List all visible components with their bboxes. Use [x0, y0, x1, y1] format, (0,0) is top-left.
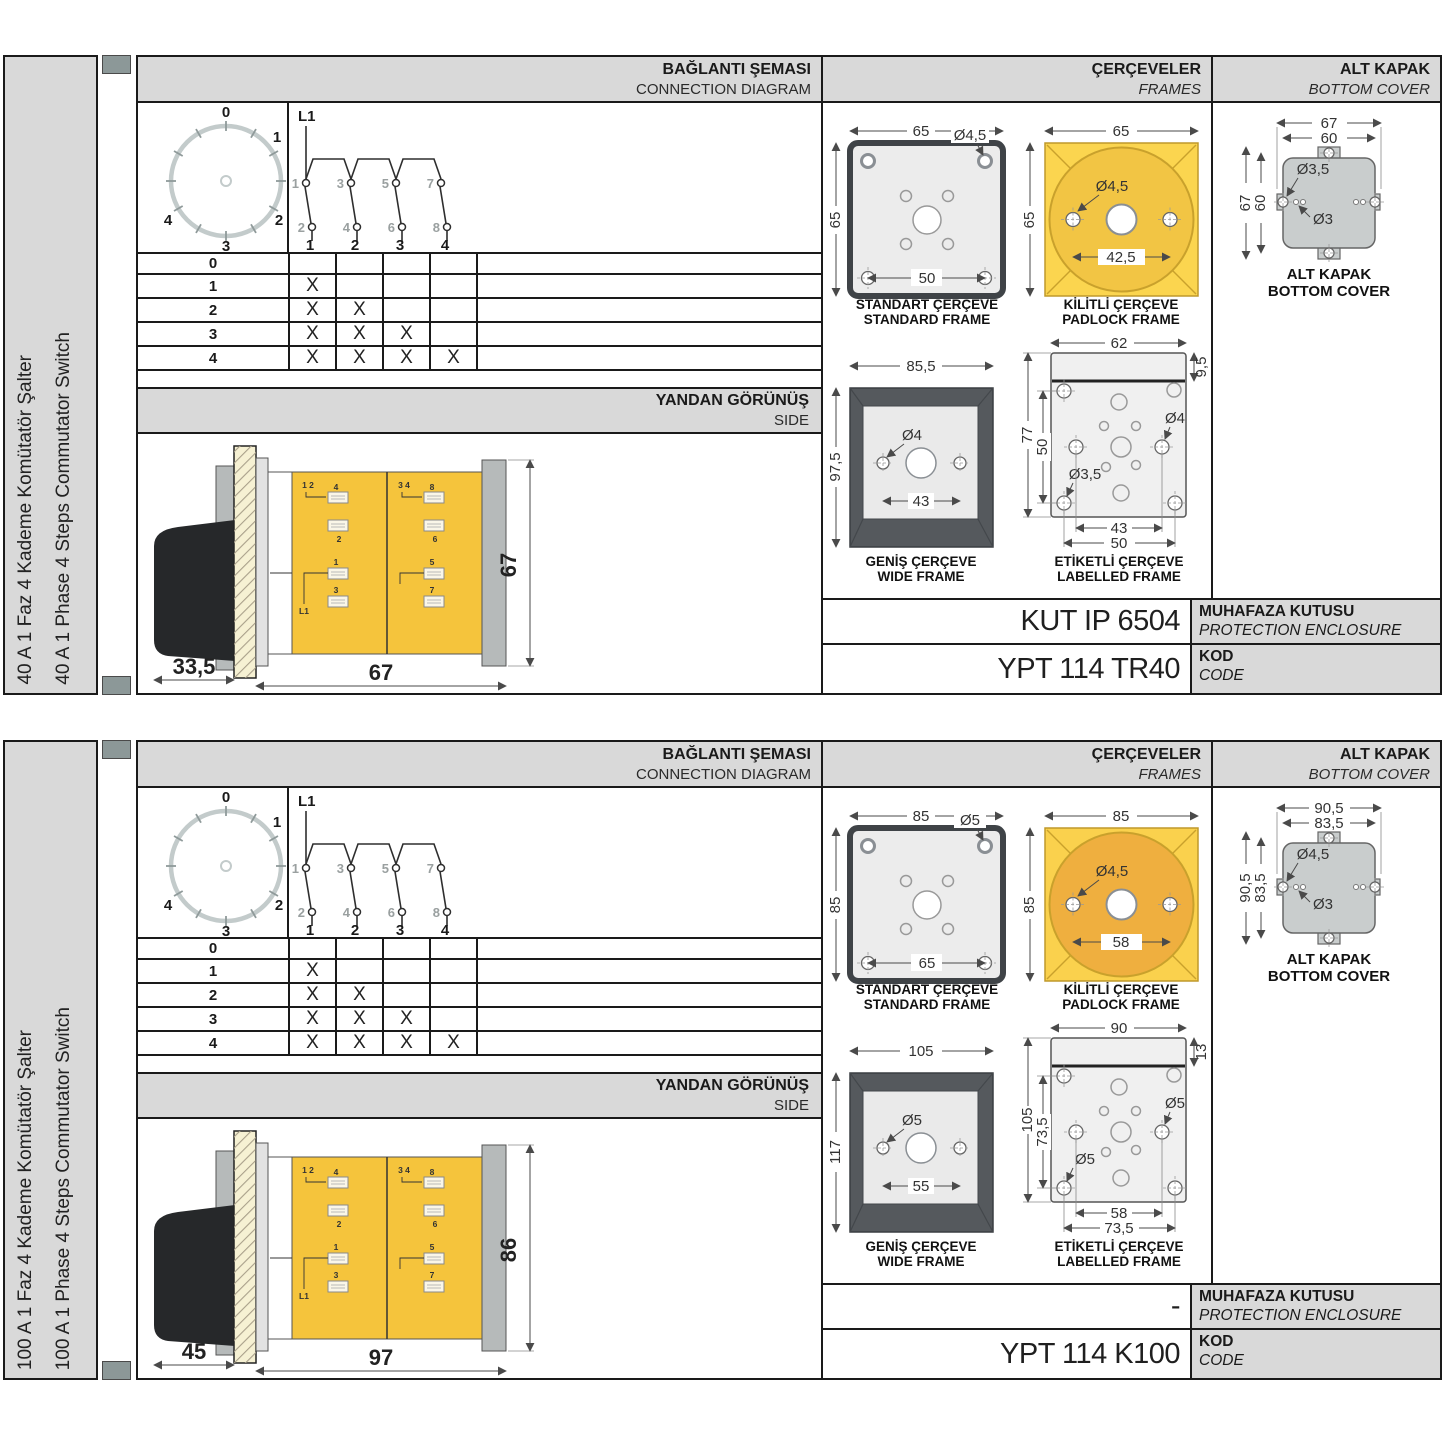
bottom-cover-drawing: 90,5 83,5 90,5 83,5 Ø4,5 Ø3 ALT KAPAK [1213, 788, 1440, 1283]
table-row: 3 X X X [138, 1007, 821, 1031]
strip-block-bottom [102, 676, 131, 695]
mark-cell [336, 938, 383, 959]
dim-hole: Ø5 [960, 812, 980, 829]
side-view-header: YANDAN GÖRÜNÜŞ SIDE [138, 387, 821, 434]
contact-label: 8 [433, 905, 440, 920]
header-title-en: FRAMES [823, 80, 1201, 99]
code-value: YPT 114 TR40 [823, 645, 1190, 693]
dial-position-1: 1 [273, 129, 281, 146]
wide-frame-drawing: Ø5 55 105 117 GENİŞ ÇERÇEVE WIDE FRAME [827, 1043, 993, 1269]
band-title-tr: YANDAN GÖRÜNÜŞ [138, 391, 809, 411]
band-title-en: SIDE [138, 1096, 809, 1115]
dim-inner-h: 83,5 [1252, 873, 1269, 902]
dim-spacing2: 73,5 [1104, 1220, 1133, 1237]
product-section-40a: 40 A 1 Faz 4 Kademe Komütatör Şalter 40 … [3, 55, 1442, 695]
enclosure-value: KUT IP 6504 [823, 600, 1190, 643]
contact-label: 2 [298, 220, 305, 235]
dim-height: 85 [827, 897, 844, 914]
enclosure-row: KUT IP 6504 MUHAFAZA KUTUSU PROTECTION E… [823, 600, 1440, 645]
step-cell: 1 [138, 959, 289, 983]
mark-cell: X [289, 346, 336, 370]
dial-position-4: 4 [164, 897, 173, 914]
catalog-page: 40 A 1 Faz 4 Kademe Komütatör Şalter 40 … [0, 0, 1445, 1445]
spacer [268, 1157, 292, 1339]
label-tr: KOD [1199, 1332, 1440, 1351]
dim-inner-h: 60 [1252, 195, 1269, 212]
dim-spacing: 43 [913, 493, 930, 510]
header-title-en: CONNECTION DIAGRAM [138, 80, 811, 99]
caption-tr: ETİKETLİ ÇERÇEVE [1054, 554, 1183, 569]
side-view-header: YANDAN GÖRÜNÜŞ SIDE [138, 1072, 821, 1119]
band-title-en: SIDE [138, 411, 809, 430]
contact-label: 6 [388, 905, 395, 920]
mark-cell: X [289, 274, 336, 298]
caption-tr: STANDART ÇERÇEVE [856, 982, 998, 997]
dial-position-2: 2 [275, 212, 283, 229]
sticker-label: 1 [334, 1242, 339, 1252]
mark-cell [430, 274, 477, 298]
switch-body: 1 2 3 4 4 2 1 3 8 6 5 7 L1 [270, 1157, 482, 1339]
binding-strip [98, 55, 136, 695]
header-title-en: BOTTOM COVER [1213, 80, 1430, 99]
step-cell: 2 [138, 983, 289, 1007]
step-contact-table: 0 1 X 2 X X [138, 937, 821, 1056]
mark-cell: X [383, 346, 430, 370]
caption-en: WIDE FRAME [878, 1254, 965, 1269]
empty-cell [477, 298, 821, 322]
empty-cell [477, 274, 821, 298]
mark-cell [430, 1007, 477, 1031]
step-cell: 4 [138, 346, 289, 370]
header-title-tr: ÇERÇEVELER [823, 60, 1201, 80]
dial-position-3: 3 [222, 923, 230, 937]
label-en: PROTECTION ENCLOSURE [1199, 621, 1440, 640]
mark-cell [383, 298, 430, 322]
strip-block-top [102, 740, 131, 759]
step-cell: 2 [138, 298, 289, 322]
mark-cell: X [336, 322, 383, 346]
mark-cell [289, 253, 336, 274]
dim-width: 65 [1113, 123, 1130, 140]
sticker-label: 6 [433, 1219, 438, 1229]
header-title-en: CONNECTION DIAGRAM [138, 765, 811, 784]
sticker-label: 3 [334, 1270, 339, 1280]
switch-body: 1 2 3 4 4 2 1 3 8 6 5 7 L1 [270, 472, 482, 654]
mark-cell [430, 253, 477, 274]
dim-depth: 45 [182, 1339, 206, 1364]
frames-header: ÇERÇEVELER FRAMES [823, 57, 1211, 103]
code-label: KOD CODE [1190, 1330, 1440, 1378]
dim-width: 67 [369, 660, 393, 685]
contact-label: 3 [337, 861, 344, 876]
mark-cell: X [336, 1007, 383, 1031]
dim-height: 65 [1021, 212, 1038, 229]
standard-frame-drawing: 65 Ø4,5 65 50 STANDART ÇERÇEVE STANDARD … [827, 123, 1003, 327]
product-title-tr: 100 A 1 Faz 4 Kademe Komütatör Şalter [15, 1030, 37, 1370]
sticker-label: 5 [430, 1242, 435, 1252]
section-title-sidebar: 100 A 1 Faz 4 Kademe Komütatör Şalter 10… [3, 740, 98, 1380]
spec-rows: - MUHAFAZA KUTUSU PROTECTION ENCLOSURE Y… [823, 1283, 1440, 1378]
dim-spacing2: 50 [1111, 535, 1128, 552]
dial-position-3: 3 [222, 238, 230, 252]
sticker-label: 5 [430, 557, 435, 567]
label-en: PROTECTION ENCLOSURE [1199, 1306, 1440, 1325]
sticker-label: 7 [430, 585, 435, 595]
dim-strip: 13 [1193, 1044, 1210, 1061]
product-title-en: 100 A 1 Phase 4 Steps Commutator Switch [53, 1007, 75, 1370]
table-row: 1 X [138, 959, 821, 983]
dim-height: 117 [827, 1140, 844, 1164]
caption-tr: GENİŞ ÇERÇEVE [865, 1239, 976, 1254]
step-cell: 1 [138, 274, 289, 298]
dial-position-4: 4 [164, 212, 173, 229]
mark-cell: X [289, 1031, 336, 1055]
dim-hole2: Ø5 [1075, 1151, 1095, 1168]
front-plate [256, 458, 268, 666]
dim-spacing: 50 [919, 270, 936, 287]
caption-en: PADLOCK FRAME [1062, 997, 1180, 1012]
dim-inner-w: 60 [1321, 130, 1338, 147]
mark-cell [336, 253, 383, 274]
standard-frame-drawing: 85 Ø5 85 65 STANDART ÇERÇEVE STANDARD FR… [827, 808, 1003, 1012]
padlock-frame-drawing: Ø4,5 42,5 65 65 KİLİTLİ ÇERÇEVE PADLOCK … [1021, 123, 1198, 327]
mark-cell: X [336, 346, 383, 370]
spec-rows: KUT IP 6504 MUHAFAZA KUTUSU PROTECTION E… [823, 598, 1440, 693]
terminal-label: 3 [396, 922, 404, 937]
sticker-label: 8 [430, 482, 435, 492]
line-label: L1 [298, 793, 316, 810]
terminal-label: 2 [351, 922, 359, 937]
connection-diagram-header: BAĞLANTI ŞEMASI CONNECTION DIAGRAM [138, 57, 821, 103]
gasket-hatched-plate [234, 446, 256, 678]
dim-hole: Ø4 [1165, 410, 1185, 427]
body-terminal-header: 1 2 [302, 1165, 314, 1175]
table-row: 2 X X [138, 983, 821, 1007]
table-row: 1 X [138, 274, 821, 298]
mark-cell [383, 959, 430, 983]
side-view-drawing: 1 2 3 4 4 2 1 3 8 6 5 7 L1 33,5 [138, 434, 821, 693]
mark-cell [289, 938, 336, 959]
label-tr: KOD [1199, 647, 1440, 666]
enclosure-value: - [823, 1285, 1190, 1328]
mark-cell: X [289, 959, 336, 983]
contact-label: 2 [298, 905, 305, 920]
dim-inner-w: 83,5 [1314, 815, 1343, 832]
strip-block-top [102, 55, 131, 74]
empty-cell [477, 346, 821, 370]
sticker-label: 3 [334, 585, 339, 595]
switch-schematic: L1 1 3 5 7 2 [292, 793, 451, 937]
caption-en: PADLOCK FRAME [1062, 312, 1180, 327]
strip-block-bottom [102, 1361, 131, 1380]
sticker-label: 6 [433, 534, 438, 544]
contact-label: 3 [337, 176, 344, 191]
contact-label: 5 [382, 176, 389, 191]
contact-label: 1 [292, 176, 299, 191]
terminal-label: 2 [351, 237, 359, 252]
terminal-label: 1 [306, 237, 314, 252]
mark-cell: X [289, 1007, 336, 1031]
dim-hole: Ø4,5 [1297, 846, 1330, 863]
empty-cell [477, 983, 821, 1007]
mark-cell: X [383, 322, 430, 346]
dim-width: 85,5 [906, 358, 935, 375]
caption-en: STANDARD FRAME [864, 997, 991, 1012]
mark-cell: X [430, 1031, 477, 1055]
empty-cell [477, 959, 821, 983]
code-row: YPT 114 TR40 KOD CODE [823, 645, 1440, 693]
dim-spacing: 55 [913, 1178, 930, 1195]
mark-cell [336, 959, 383, 983]
dim-hole: Ø4,5 [954, 127, 987, 144]
terminal-label: 4 [441, 922, 450, 937]
frames-header: ÇERÇEVELER FRAMES [823, 742, 1211, 788]
sticker-label: 2 [337, 534, 342, 544]
header-title-tr: ALT KAPAK [1213, 60, 1430, 80]
dim-depth: 33,5 [173, 654, 216, 679]
step-cell: 3 [138, 322, 289, 346]
spacer [268, 472, 292, 654]
dim-height: 86 [496, 1238, 521, 1262]
label-tr: MUHAFAZA KUTUSU [1199, 602, 1440, 621]
mark-cell: X [289, 983, 336, 1007]
label-en: CODE [1199, 666, 1440, 685]
frames-drawings: 85 Ø5 85 65 STANDART ÇERÇEVE STANDARD FR… [823, 788, 1211, 1283]
empty-cell [477, 1031, 821, 1055]
step-cell: 0 [138, 253, 289, 274]
table-row: 2 X X [138, 298, 821, 322]
dim-hole2: Ø3 [1313, 896, 1333, 913]
code-row: YPT 114 K100 KOD CODE [823, 1330, 1440, 1378]
product-title-tr: 40 A 1 Faz 4 Kademe Komütatör Şalter [15, 355, 37, 685]
caption-tr: STANDART ÇERÇEVE [856, 297, 998, 312]
caption-en: STANDARD FRAME [864, 312, 991, 327]
dial-position-2: 2 [275, 897, 283, 914]
body-terminal-header: 3 4 [398, 1165, 410, 1175]
caption-en: WIDE FRAME [878, 569, 965, 584]
step-contact-table: 0 1 X 2 X X [138, 252, 821, 371]
contact-label: 5 [382, 861, 389, 876]
rotary-dial: 0 1 2 3 4 [164, 104, 286, 252]
dim-width: 85 [913, 808, 930, 825]
mark-cell: X [289, 298, 336, 322]
sticker-label: 7 [430, 1270, 435, 1280]
dim-height-inner: 73,5 [1034, 1117, 1051, 1146]
contact-label: 7 [427, 861, 434, 876]
header-title-en: BOTTOM COVER [1213, 765, 1430, 784]
bottom-cover-header: ALT KAPAK BOTTOM COVER [1213, 57, 1440, 103]
dim-width: 97 [369, 1345, 393, 1370]
dial-position-1: 1 [273, 814, 281, 831]
caption-tr: KİLİTLİ ÇERÇEVE [1064, 297, 1179, 312]
connection-diagram: 0 1 2 3 4 L1 [138, 103, 821, 252]
sticker-label: 4 [334, 1167, 339, 1177]
mark-cell [336, 274, 383, 298]
dial-position-0: 0 [222, 789, 230, 806]
wide-frame-drawing: Ø4 43 85,5 97,5 GENİŞ ÇERÇEVE WIDE FRAME [827, 358, 993, 584]
caption-tr: ETİKETLİ ÇERÇEVE [1054, 1239, 1183, 1254]
line-label: L1 [299, 606, 309, 616]
dim-hole2: Ø3,5 [1069, 466, 1102, 483]
dim-width: 62 [1111, 335, 1128, 352]
mark-cell [430, 983, 477, 1007]
body-terminal-header: 1 2 [302, 480, 314, 490]
terminal-label: 4 [441, 237, 450, 252]
label-tr: MUHAFAZA KUTUSU [1199, 1287, 1440, 1306]
gasket-hatched-plate [234, 1131, 256, 1363]
binding-strip [98, 740, 136, 1380]
mark-cell: X [383, 1031, 430, 1055]
contact-label: 7 [427, 176, 434, 191]
header-title-tr: ALT KAPAK [1213, 745, 1430, 765]
line-label: L1 [299, 1291, 309, 1301]
dim-height: 65 [827, 212, 844, 229]
mark-cell [430, 938, 477, 959]
contact-label: 4 [343, 905, 351, 920]
dim-hole: Ø3,5 [1297, 161, 1330, 178]
dim-hole: Ø4,5 [1096, 863, 1129, 880]
dim-hole: Ø4 [902, 427, 922, 444]
empty-cell [477, 1007, 821, 1031]
labelled-frame-drawing: 90 13 105 73,5 [1019, 1020, 1210, 1269]
step-cell: 0 [138, 938, 289, 959]
frames-drawings: 65 Ø4,5 65 50 STANDART ÇERÇEVE STANDARD … [823, 103, 1211, 598]
code-value: YPT 114 K100 [823, 1330, 1190, 1378]
label-en: CODE [1199, 1351, 1440, 1370]
mark-cell [430, 298, 477, 322]
mark-cell [383, 253, 430, 274]
mark-cell: X [383, 1007, 430, 1031]
caption-tr: GENİŞ ÇERÇEVE [865, 554, 976, 569]
padlock-frame-drawing: Ø4,5 58 85 85 KİLİTLİ ÇERÇEVE PADLOCK FR… [1021, 808, 1198, 1012]
mark-cell [383, 938, 430, 959]
line-label: L1 [298, 108, 316, 125]
dim-spacing: 65 [919, 955, 936, 972]
terminal-label: 3 [396, 237, 404, 252]
code-label: KOD CODE [1190, 645, 1440, 693]
caption-tr: ALT KAPAK [1287, 951, 1372, 968]
header-title-tr: BAĞLANTI ŞEMASI [138, 60, 811, 80]
product-section-100a: 100 A 1 Faz 4 Kademe Komütatör Şalter 10… [3, 740, 1442, 1380]
caption-en: LABELLED FRAME [1057, 1254, 1181, 1269]
mark-cell [430, 322, 477, 346]
step-cell: 4 [138, 1031, 289, 1055]
sticker-label: 2 [337, 1219, 342, 1229]
contact-label: 4 [343, 220, 351, 235]
table-row: 4 X X X X [138, 346, 821, 370]
bottom-cover-header: ALT KAPAK BOTTOM COVER [1213, 742, 1440, 788]
mark-cell: X [336, 298, 383, 322]
dim-width: 85 [1113, 808, 1130, 825]
dim-strip: 9,5 [1193, 357, 1210, 378]
mark-cell: X [336, 1031, 383, 1055]
body-terminal-header: 3 4 [398, 480, 410, 490]
terminal-label: 1 [306, 922, 314, 937]
header-title-tr: ÇERÇEVELER [823, 745, 1201, 765]
dim-hole2: Ø3 [1313, 211, 1333, 228]
mark-cell: X [430, 346, 477, 370]
connection-diagram-header: BAĞLANTI ŞEMASI CONNECTION DIAGRAM [138, 742, 821, 788]
dim-height: 97,5 [827, 452, 844, 481]
caption-tr: KİLİTLİ ÇERÇEVE [1064, 982, 1179, 997]
sticker-label: 1 [334, 557, 339, 567]
product-title-en: 40 A 1 Phase 4 Steps Commutator Switch [53, 332, 75, 685]
sticker-label: 4 [334, 482, 339, 492]
rotary-dial: 0 1 2 3 4 [164, 789, 286, 937]
contact-label: 1 [292, 861, 299, 876]
caption-en: LABELLED FRAME [1057, 569, 1181, 584]
contact-label: 8 [433, 220, 440, 235]
dim-hole: Ø5 [902, 1112, 922, 1129]
connection-diagram: 0 1 2 3 4 L1 [138, 788, 821, 937]
empty-cell [477, 322, 821, 346]
table-row: 3 X X X [138, 322, 821, 346]
section-main: BAĞLANTI ŞEMASI CONNECTION DIAGRAM ÇERÇE… [136, 740, 1442, 1380]
dim-width: 90 [1111, 1020, 1128, 1037]
step-cell: 3 [138, 1007, 289, 1031]
dim-width: 105 [908, 1043, 933, 1060]
sticker-label: 8 [430, 1167, 435, 1177]
side-view-drawing: 1 2 3 4 4 2 1 3 8 6 5 7 L1 45 9 [138, 1119, 821, 1378]
dim-hole: Ø4,5 [1096, 178, 1129, 195]
table-row: 4 X X X X [138, 1031, 821, 1055]
mark-cell [430, 959, 477, 983]
band-title-tr: YANDAN GÖRÜNÜŞ [138, 1076, 809, 1096]
caption-en: BOTTOM COVER [1268, 283, 1390, 300]
mark-cell [383, 983, 430, 1007]
caption-en: BOTTOM COVER [1268, 968, 1390, 985]
switch-schematic: L1 1 3 5 7 2 [292, 108, 451, 252]
header-title-en: FRAMES [823, 765, 1201, 784]
header-title-tr: BAĞLANTI ŞEMASI [138, 745, 811, 765]
empty-cell [477, 938, 821, 959]
enclosure-row: - MUHAFAZA KUTUSU PROTECTION ENCLOSURE [823, 1285, 1440, 1330]
table-row: 0 [138, 253, 821, 274]
section-title-sidebar: 40 A 1 Faz 4 Kademe Komütatör Şalter 40 … [3, 55, 98, 695]
labelled-frame-drawing: 62 9,5 77 50 [1019, 335, 1210, 584]
dim-height-inner: 50 [1034, 439, 1051, 456]
contact-label: 6 [388, 220, 395, 235]
mark-cell [383, 274, 430, 298]
caption-tr: ALT KAPAK [1287, 266, 1372, 283]
dim-width: 65 [913, 123, 930, 140]
switch-handle [154, 520, 235, 661]
front-plate [256, 1143, 268, 1351]
bottom-cover-drawing: 67 60 67 60 Ø3,5 Ø3 ALT KAPAK BOTTOM [1213, 103, 1440, 598]
table-row: 0 [138, 938, 821, 959]
empty-cell [477, 253, 821, 274]
dial-position-0: 0 [222, 104, 230, 121]
dim-hole: Ø5 [1165, 1095, 1185, 1112]
dim-height: 67 [496, 553, 521, 577]
switch-handle [154, 1205, 235, 1346]
enclosure-label: MUHAFAZA KUTUSU PROTECTION ENCLOSURE [1190, 600, 1440, 643]
section-main: BAĞLANTI ŞEMASI CONNECTION DIAGRAM ÇERÇE… [136, 55, 1442, 695]
mark-cell: X [336, 983, 383, 1007]
enclosure-label: MUHAFAZA KUTUSU PROTECTION ENCLOSURE [1190, 1285, 1440, 1328]
dim-spacing: 58 [1113, 934, 1130, 951]
dim-height: 85 [1021, 897, 1038, 914]
dim-spacing: 42,5 [1106, 249, 1135, 266]
mark-cell: X [289, 322, 336, 346]
